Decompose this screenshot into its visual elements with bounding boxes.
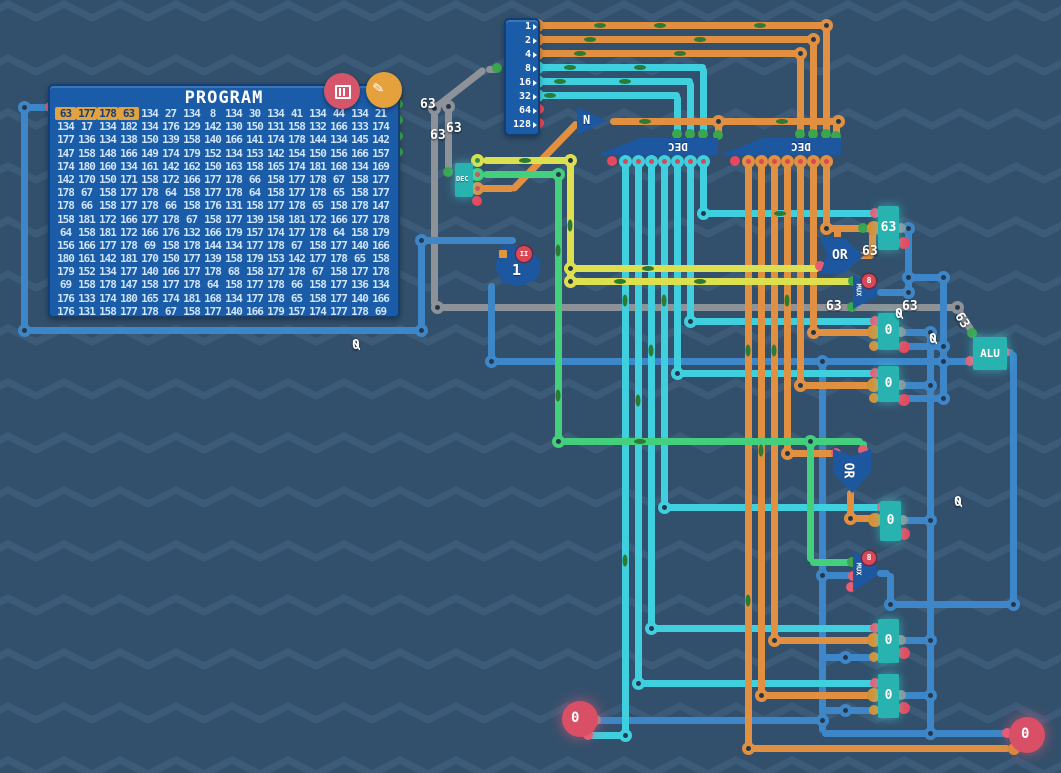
wire-segment[interactable] bbox=[418, 240, 425, 330]
program-cell: 177 bbox=[97, 239, 118, 252]
program-cell: 174 bbox=[160, 292, 181, 305]
program-cell: 174 bbox=[97, 292, 118, 305]
wire-joint[interactable] bbox=[924, 514, 937, 527]
program-memory-button[interactable] bbox=[324, 73, 360, 109]
wire-joint[interactable] bbox=[485, 355, 498, 368]
program-cell: 158 bbox=[76, 147, 97, 160]
program-cell: 134 bbox=[139, 120, 160, 133]
program-cell: 169 bbox=[370, 160, 391, 173]
program-row: 1771361341381501391581401661411741781441… bbox=[55, 133, 391, 146]
program-cell: 181 bbox=[181, 292, 202, 305]
program-cell: 134 bbox=[328, 133, 349, 146]
wire-joint[interactable] bbox=[768, 155, 781, 168]
program-cell: 177 bbox=[328, 305, 349, 318]
program-cell: 158 bbox=[76, 278, 97, 291]
wire-segment[interactable] bbox=[558, 438, 863, 445]
program-cell: 136 bbox=[349, 278, 370, 291]
wire-joint[interactable] bbox=[794, 155, 807, 168]
program-cell: 142 bbox=[55, 173, 76, 186]
program-edit-button[interactable]: ✎ bbox=[366, 72, 402, 108]
program-cell: 178 bbox=[139, 305, 160, 318]
pin-triangle-icon bbox=[533, 80, 537, 86]
wire-segment[interactable] bbox=[537, 22, 829, 29]
wire-segment[interactable] bbox=[638, 680, 875, 687]
program-cell: 158 bbox=[244, 265, 265, 278]
wire-joint[interactable] bbox=[832, 115, 845, 128]
wire-joint[interactable] bbox=[684, 155, 697, 168]
register-4-value: 0 bbox=[880, 513, 901, 528]
program-cell: 158 bbox=[349, 226, 370, 239]
wire-segment[interactable] bbox=[800, 382, 875, 389]
wire-segment[interactable] bbox=[687, 163, 694, 321]
wire-joint[interactable] bbox=[431, 301, 444, 314]
pin-dot[interactable] bbox=[685, 129, 695, 139]
signal-direction-arrow bbox=[774, 211, 786, 216]
mux-2-label: MUX bbox=[854, 563, 862, 576]
wire-segment[interactable] bbox=[823, 163, 830, 228]
wire-segment[interactable] bbox=[761, 692, 875, 699]
signal-direction-arrow bbox=[564, 65, 576, 70]
wire-joint[interactable] bbox=[632, 677, 645, 690]
program-row: 6915817814715817717864158177178661581771… bbox=[55, 278, 391, 291]
program-cell: 131 bbox=[76, 305, 97, 318]
program-cell: 166 bbox=[118, 147, 139, 160]
program-cell: 67 bbox=[307, 265, 328, 278]
program-cell: 177 bbox=[160, 278, 181, 291]
program-cell: 133 bbox=[76, 292, 97, 305]
wire-joint[interactable] bbox=[807, 155, 820, 168]
program-cell: 150 bbox=[139, 133, 160, 146]
program-cell: 140 bbox=[202, 133, 223, 146]
wire-joint[interactable] bbox=[564, 262, 577, 275]
program-cell: 166 bbox=[139, 226, 160, 239]
program-cell: 177 bbox=[118, 305, 139, 318]
program-cell: 134 bbox=[181, 107, 202, 120]
wire-value-label: 63 bbox=[862, 244, 878, 259]
wire-joint[interactable] bbox=[807, 326, 820, 339]
wire-segment[interactable] bbox=[819, 361, 826, 733]
wire-segment[interactable] bbox=[774, 637, 875, 644]
wire-segment[interactable] bbox=[1010, 352, 1017, 604]
program-cell: 179 bbox=[55, 265, 76, 278]
wire-joint[interactable] bbox=[742, 742, 755, 755]
program-cell: 67 bbox=[160, 305, 181, 318]
program-cell: 132 bbox=[307, 120, 328, 133]
wire-joint[interactable] bbox=[839, 651, 852, 664]
program-cell: 181 bbox=[97, 226, 118, 239]
wire-joint[interactable] bbox=[816, 714, 829, 727]
wire-segment[interactable] bbox=[570, 265, 820, 272]
program-cell: 158 bbox=[97, 305, 118, 318]
register-3[interactable]: 0 bbox=[878, 366, 899, 402]
program-cell: 180 bbox=[118, 292, 139, 305]
program-row: 1341713418213417612914213015013115813216… bbox=[55, 120, 391, 133]
wire-segment[interactable] bbox=[24, 327, 421, 334]
program-cell: 158 bbox=[244, 199, 265, 212]
program-cell: 178 bbox=[223, 186, 244, 199]
wire-joint[interactable] bbox=[902, 286, 915, 299]
program-cell: 178 bbox=[307, 226, 328, 239]
signal-direction-arrow bbox=[759, 444, 764, 456]
program-cell: 174 bbox=[265, 226, 286, 239]
program-cell: 178 bbox=[139, 186, 160, 199]
pin-dot[interactable] bbox=[472, 196, 482, 206]
wire-joint[interactable] bbox=[415, 234, 428, 247]
program-cell: 176 bbox=[202, 199, 223, 212]
wire-segment[interactable] bbox=[810, 559, 852, 566]
wire-joint[interactable] bbox=[755, 155, 768, 168]
pin-dot[interactable] bbox=[795, 129, 805, 139]
wire-segment[interactable] bbox=[700, 163, 707, 213]
wire-joint[interactable] bbox=[619, 729, 632, 742]
program-cell: 131 bbox=[223, 199, 244, 212]
wire-segment[interactable] bbox=[745, 163, 752, 748]
pin-dot[interactable] bbox=[730, 156, 740, 166]
program-cell: 142 bbox=[286, 252, 307, 265]
program-cell: 166 bbox=[328, 213, 349, 226]
wire-joint[interactable] bbox=[794, 47, 807, 60]
program-cell: 178 bbox=[265, 239, 286, 252]
decoder-right-label: DEC bbox=[791, 140, 811, 153]
input-bit-4[interactable]: 4 bbox=[506, 48, 538, 62]
program-cell: 158 bbox=[223, 252, 244, 265]
wire-joint[interactable] bbox=[697, 155, 710, 168]
wire-joint[interactable] bbox=[552, 168, 565, 181]
program-cell: 174 bbox=[370, 120, 391, 133]
program-cell: 139 bbox=[244, 213, 265, 226]
program-cell: 66 bbox=[286, 278, 307, 291]
program-cell: 178 bbox=[370, 213, 391, 226]
program-grid: 6317717863134271348134301344113444134211… bbox=[55, 107, 391, 318]
program-cell: 177 bbox=[370, 173, 391, 186]
wire-joint[interactable] bbox=[671, 155, 684, 168]
input-bit-32[interactable]: 32 bbox=[506, 90, 538, 104]
wire-segment[interactable] bbox=[807, 441, 814, 562]
wire-joint[interactable] bbox=[924, 727, 937, 740]
wire-joint[interactable] bbox=[755, 689, 768, 702]
program-cell: 134 bbox=[349, 160, 370, 173]
program-panel[interactable]: PROGRAM 63177178631342713481343013441134… bbox=[48, 84, 400, 318]
wire-joint[interactable] bbox=[632, 155, 645, 168]
instruction-decoder-label: DEC bbox=[456, 175, 469, 183]
program-cell: 178 bbox=[286, 133, 307, 146]
wire-joint[interactable] bbox=[684, 315, 697, 328]
signal-direction-arrow bbox=[636, 394, 641, 406]
program-cell: 147 bbox=[370, 199, 391, 212]
wire-joint[interactable] bbox=[924, 689, 937, 702]
program-cell: 182 bbox=[118, 120, 139, 133]
program-cell: 158 bbox=[370, 252, 391, 265]
program-cell: 150 bbox=[307, 147, 328, 160]
program-cell: 180 bbox=[55, 252, 76, 265]
wire-joint[interactable] bbox=[844, 512, 857, 525]
program-cell: 145 bbox=[349, 133, 370, 146]
program-cell: 140 bbox=[223, 305, 244, 318]
wire-joint[interactable] bbox=[937, 392, 950, 405]
pin-triangle-icon bbox=[533, 122, 537, 128]
wire-segment[interactable] bbox=[810, 163, 817, 332]
program-cell: 177 bbox=[223, 213, 244, 226]
register-4[interactable]: 0 bbox=[880, 501, 901, 541]
program-cell: 150 bbox=[160, 252, 181, 265]
wire-segment[interactable] bbox=[21, 107, 28, 330]
wire-joint[interactable] bbox=[564, 275, 577, 288]
program-cell: 134 bbox=[370, 278, 391, 291]
pin-dot[interactable] bbox=[808, 129, 818, 139]
program-cell: 156 bbox=[328, 147, 349, 160]
input-bit-16[interactable]: 16 bbox=[506, 76, 538, 90]
pin-dot[interactable] bbox=[672, 129, 682, 139]
pin-triangle-icon bbox=[533, 108, 537, 114]
program-cell: 178 bbox=[97, 278, 118, 291]
program-cell: 134 bbox=[223, 147, 244, 160]
wire-joint[interactable] bbox=[820, 19, 833, 32]
program-cell: 138 bbox=[118, 133, 139, 146]
input-bit-64[interactable]: 64 bbox=[506, 104, 538, 118]
wire-joint[interactable] bbox=[658, 501, 671, 514]
output-left-value: 0 bbox=[562, 710, 598, 726]
program-cell: 153 bbox=[244, 147, 265, 160]
wire-segment[interactable] bbox=[687, 81, 694, 134]
program-cell: 160 bbox=[97, 160, 118, 173]
wire-joint[interactable] bbox=[820, 155, 833, 168]
program-cell: 178 bbox=[265, 292, 286, 305]
memory-icon bbox=[335, 85, 351, 99]
input-bit-1[interactable]: 1 bbox=[506, 20, 538, 34]
program-cell: 153 bbox=[265, 252, 286, 265]
wire-segment[interactable] bbox=[421, 237, 516, 244]
program-cell: 149 bbox=[139, 147, 160, 160]
wire-joint[interactable] bbox=[564, 154, 577, 167]
wire-joint[interactable] bbox=[712, 115, 725, 128]
program-cell: 181 bbox=[76, 213, 97, 226]
program-cell: 178 bbox=[160, 213, 181, 226]
signal-direction-arrow bbox=[568, 219, 573, 231]
output-left[interactable]: 0 bbox=[562, 701, 598, 737]
pin-dot[interactable] bbox=[607, 156, 617, 166]
register-5[interactable]: 0 bbox=[878, 619, 899, 663]
wire-joint[interactable] bbox=[619, 155, 632, 168]
program-cell: 158 bbox=[76, 226, 97, 239]
wire-joint[interactable] bbox=[781, 447, 794, 460]
wire-segment[interactable] bbox=[927, 332, 934, 733]
wire-segment[interactable] bbox=[537, 64, 706, 71]
wire-value-label: 63 bbox=[430, 128, 446, 143]
register-2-value: 0 bbox=[878, 323, 899, 338]
program-cell: 131 bbox=[265, 120, 286, 133]
program-cell: 147 bbox=[55, 147, 76, 160]
wire-joint[interactable] bbox=[781, 155, 794, 168]
wire-segment[interactable] bbox=[437, 304, 957, 311]
wire-joint[interactable] bbox=[658, 155, 671, 168]
wire-segment[interactable] bbox=[622, 163, 629, 735]
not-gate-label: N bbox=[583, 113, 590, 127]
register-6[interactable]: 0 bbox=[878, 674, 899, 718]
decoder-left-label: DEC bbox=[668, 140, 688, 153]
wire-segment[interactable] bbox=[890, 601, 1013, 608]
signal-direction-arrow bbox=[694, 37, 706, 42]
program-cell: 174 bbox=[265, 133, 286, 146]
wire-joint[interactable] bbox=[816, 355, 829, 368]
program-cell: 177 bbox=[349, 265, 370, 278]
wire-joint[interactable] bbox=[742, 155, 755, 168]
wire-joint[interactable] bbox=[18, 101, 31, 114]
program-cell: 17 bbox=[76, 120, 97, 133]
program-cell: 134 bbox=[307, 107, 328, 120]
program-cell: 178 bbox=[307, 173, 328, 186]
program-cell: 172 bbox=[97, 213, 118, 226]
wire-joint[interactable] bbox=[645, 155, 658, 168]
wire-joint[interactable] bbox=[804, 435, 817, 448]
wire-segment[interactable] bbox=[758, 163, 765, 695]
program-cell: 166 bbox=[223, 133, 244, 146]
wire-joint[interactable] bbox=[1007, 598, 1020, 611]
program-cell: 133 bbox=[349, 120, 370, 133]
output-right[interactable]: 0 bbox=[1009, 717, 1045, 753]
program-cell: 172 bbox=[160, 173, 181, 186]
program-cell: 140 bbox=[349, 292, 370, 305]
program-cell: 67 bbox=[76, 186, 97, 199]
program-cell: 172 bbox=[118, 226, 139, 239]
program-cell: 179 bbox=[370, 226, 391, 239]
program-cell: 179 bbox=[265, 305, 286, 318]
program-cell: 158 bbox=[265, 186, 286, 199]
wire-joint[interactable] bbox=[924, 379, 937, 392]
program-cell: 165 bbox=[139, 292, 160, 305]
wire-joint[interactable] bbox=[807, 33, 820, 46]
program-cell: 134 bbox=[97, 133, 118, 146]
wire-joint[interactable] bbox=[924, 634, 937, 647]
wire-segment[interactable] bbox=[813, 329, 875, 336]
program-cell: 154 bbox=[286, 147, 307, 160]
signal-direction-arrow bbox=[614, 279, 626, 284]
wire-value-label: 0 bbox=[895, 307, 1061, 322]
register-5-value: 0 bbox=[878, 633, 899, 648]
wire-joint[interactable] bbox=[884, 598, 897, 611]
program-cell: 177 bbox=[76, 107, 97, 120]
program-cell: 158 bbox=[97, 186, 118, 199]
program-cell: 142 bbox=[202, 120, 223, 133]
pin-triangle-icon bbox=[533, 52, 537, 58]
wire-joint[interactable] bbox=[902, 271, 915, 284]
program-cell: 158 bbox=[265, 213, 286, 226]
register-3-value: 0 bbox=[878, 376, 899, 391]
program-cell: 166 bbox=[370, 292, 391, 305]
program-cell: 157 bbox=[286, 305, 307, 318]
program-cell: 134 bbox=[139, 107, 160, 120]
pin-dot[interactable] bbox=[443, 167, 453, 177]
pin-dot[interactable] bbox=[898, 237, 910, 249]
wire-joint[interactable] bbox=[415, 324, 428, 337]
pin-dot[interactable] bbox=[898, 394, 910, 406]
wire-joint[interactable] bbox=[937, 271, 950, 284]
wire-joint[interactable] bbox=[552, 435, 565, 448]
program-cell: 158 bbox=[181, 133, 202, 146]
program-cell: 158 bbox=[223, 278, 244, 291]
program-cell: 177 bbox=[328, 239, 349, 252]
wire-segment[interactable] bbox=[784, 163, 791, 453]
signal-direction-arrow bbox=[654, 23, 666, 28]
program-cell: 130 bbox=[223, 120, 244, 133]
signal-direction-arrow bbox=[694, 279, 706, 284]
mux-2-byte-badge: 8 bbox=[862, 551, 876, 565]
wire-value-label: 63 bbox=[420, 97, 436, 112]
program-cell: 67 bbox=[286, 239, 307, 252]
wire-segment[interactable] bbox=[748, 745, 1010, 752]
wire-joint[interactable] bbox=[794, 379, 807, 392]
program-cell: 158 bbox=[349, 186, 370, 199]
wire-segment[interactable] bbox=[877, 570, 890, 577]
wire-joint[interactable] bbox=[442, 100, 455, 113]
program-cell: 177 bbox=[307, 252, 328, 265]
program-cell: 177 bbox=[181, 265, 202, 278]
program-cell: 136 bbox=[76, 133, 97, 146]
signal-direction-arrow bbox=[594, 23, 606, 28]
wire-segment[interactable] bbox=[595, 717, 822, 724]
wire-joint[interactable] bbox=[816, 569, 829, 582]
register-1[interactable]: 63 bbox=[878, 206, 899, 250]
pin-dot[interactable] bbox=[698, 129, 708, 139]
input-bit-8[interactable]: 8 bbox=[506, 62, 538, 76]
program-row: 1761331741801651741811681341771786515817… bbox=[55, 292, 391, 305]
output-right-value: 0 bbox=[1009, 726, 1045, 742]
program-cell: 178 bbox=[286, 199, 307, 212]
wire-joint[interactable] bbox=[839, 704, 852, 717]
program-cell: 30 bbox=[244, 107, 265, 120]
program-cell: 166 bbox=[349, 147, 370, 160]
wire-segment[interactable] bbox=[822, 730, 1007, 737]
program-cell: 177 bbox=[265, 265, 286, 278]
wire-segment[interactable] bbox=[771, 163, 778, 640]
program-cell: 65 bbox=[349, 252, 370, 265]
program-cell: 177 bbox=[244, 239, 265, 252]
program-cell: 141 bbox=[244, 133, 265, 146]
program-cell: 166 bbox=[160, 265, 181, 278]
pin-dot[interactable] bbox=[898, 702, 910, 714]
program-cell: 176 bbox=[55, 305, 76, 318]
program-cell: 134 bbox=[223, 239, 244, 252]
wire-segment[interactable] bbox=[661, 163, 668, 507]
program-cell: 158 bbox=[160, 239, 181, 252]
program-cell: 27 bbox=[160, 107, 181, 120]
wire-joint[interactable] bbox=[820, 222, 833, 235]
wire-segment[interactable] bbox=[648, 163, 655, 628]
program-cell: 142 bbox=[370, 133, 391, 146]
program-cell: 152 bbox=[76, 265, 97, 278]
program-cell: 178 bbox=[370, 265, 391, 278]
program-cell: 158 bbox=[181, 199, 202, 212]
program-cell: 177 bbox=[202, 305, 223, 318]
wire-segment[interactable] bbox=[537, 92, 680, 99]
program-cell: 69 bbox=[139, 239, 160, 252]
program-cell: 158 bbox=[244, 160, 265, 173]
wire-joint[interactable] bbox=[937, 355, 950, 368]
wire-joint[interactable] bbox=[671, 367, 684, 380]
wire-joint[interactable] bbox=[697, 207, 710, 220]
wire-joint[interactable] bbox=[18, 324, 31, 337]
pin-dot[interactable] bbox=[821, 129, 831, 139]
wire-segment[interactable] bbox=[690, 318, 875, 325]
input-bit-2[interactable]: 2 bbox=[506, 34, 538, 48]
program-cell: 161 bbox=[76, 252, 97, 265]
wire-joint[interactable] bbox=[768, 634, 781, 647]
wire-segment[interactable] bbox=[537, 36, 816, 43]
program-cell: 178 bbox=[223, 173, 244, 186]
pin-dot[interactable] bbox=[898, 647, 910, 659]
circuit-canvas[interactable]: PROGRAM 63177178631342713481343013441134… bbox=[0, 0, 1061, 773]
signal-direction-arrow bbox=[544, 93, 556, 98]
program-cell: 177 bbox=[328, 278, 349, 291]
